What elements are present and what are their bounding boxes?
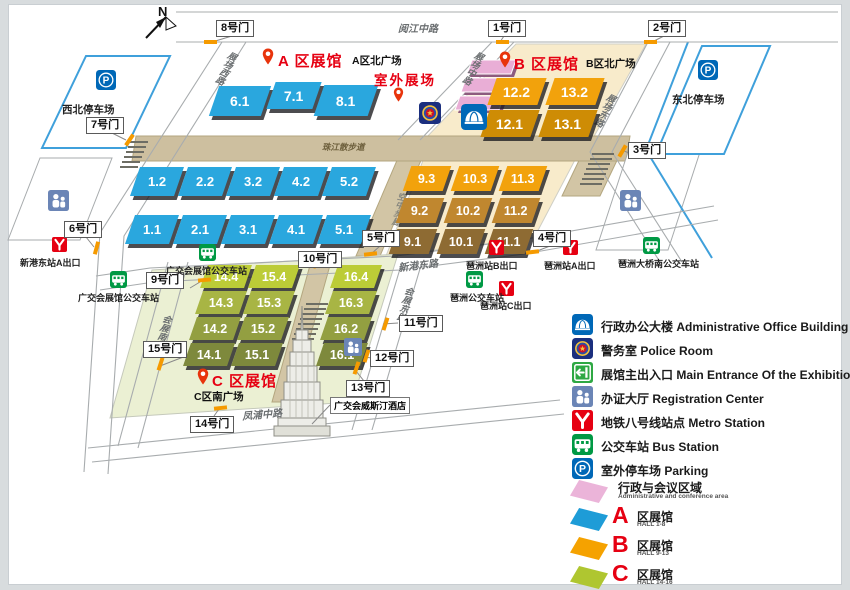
police-icon	[572, 338, 593, 359]
gate-11: 11号门	[399, 315, 443, 332]
gate-8: 8号门	[216, 20, 254, 37]
bus-exhibition-2-label: 广交会展馆公交车站	[78, 291, 159, 304]
legend-admin-area-en: Administrative and conference area	[618, 493, 728, 500]
admin-building-icon	[572, 314, 593, 335]
gate-7: 7号门	[86, 117, 124, 134]
gate-4: 4号门	[533, 230, 571, 247]
bus-icon	[572, 434, 593, 455]
metro-pazhou-b-label: 琶洲站B出口	[466, 259, 518, 272]
zone-c-title: C 区展馆	[212, 370, 277, 391]
hall-15.4: 15.4	[248, 265, 300, 288]
legend-item-police: 警务室 Police Room	[601, 342, 713, 359]
hall-6.1: 6.1	[209, 86, 271, 116]
canton-fair-complex-map: P	[0, 0, 850, 590]
hall-7.1: 7.1	[266, 82, 321, 109]
gate-marker	[204, 40, 217, 44]
metro-icon	[52, 237, 67, 252]
gate-marker	[496, 40, 509, 44]
metro-icon	[572, 410, 593, 431]
legend-letter-a: A	[612, 504, 629, 527]
gate-5: 5号门	[362, 230, 400, 247]
metro-icon	[489, 240, 504, 255]
zone-b-title: B 区展馆	[514, 53, 579, 74]
hall-15.2: 15.2	[237, 317, 289, 340]
bus-exhibition-1-label: 广交会展馆公交车站	[166, 264, 247, 277]
gate-12: 12号门	[370, 350, 414, 367]
hall-8.1: 8.1	[314, 85, 379, 116]
hall-15.3: 15.3	[243, 291, 295, 314]
gate-14: 14号门	[190, 416, 234, 433]
admin-building-icon	[461, 104, 487, 130]
parking-icon	[698, 60, 718, 80]
gate-1: 1号门	[488, 20, 526, 37]
hall-12.2: 12.2	[487, 78, 546, 105]
riverside-walkway-band	[132, 136, 630, 161]
gate-15: 15号门	[143, 341, 187, 358]
bus-pazhou-bridge-label: 琶洲大桥南公交车站	[618, 257, 699, 270]
outdoor-exhibition-label: 室外展场	[374, 69, 436, 89]
hall-15.1: 15.1	[231, 343, 283, 366]
hall-14.3: 14.3	[195, 291, 247, 314]
road-label-yuejiangzhonglu: 阅江中路	[398, 20, 438, 35]
zone-b-pin-icon	[499, 51, 511, 68]
parking-nw-label: 西北停车场	[62, 102, 115, 117]
legend-zone-b-en: HALL 9-13	[637, 550, 669, 557]
bus-icon	[643, 237, 660, 254]
legend-zone-c-en: HALL 14-16	[637, 579, 673, 586]
legend-item-registration: 办证大厅 Registration Center	[601, 390, 764, 407]
zone-a-title: A 区展馆	[278, 50, 342, 71]
hall-13.1: 13.1	[538, 110, 597, 137]
parking-icon	[96, 70, 116, 90]
legend-item-entrance: 展馆主出入口 Main Entrance Of the Exhibition H…	[601, 366, 850, 383]
compass-north-label: N	[158, 4, 167, 19]
westin-hotel-label: 广交会威斯汀酒店	[330, 397, 410, 414]
registration-icon	[620, 190, 641, 211]
hall-16.2: 16.2	[320, 317, 372, 340]
legend-letter-c: C	[612, 562, 629, 585]
registration-icon	[572, 386, 593, 407]
metro-pazhou-a-label: 琶洲站A出口	[544, 259, 596, 272]
hall-12.1: 12.1	[480, 110, 539, 137]
outdoor-exhibition-pin-icon	[393, 87, 404, 102]
road-label-zhujiangsanbudao: 珠江散步道	[322, 141, 365, 153]
main-entrance-icon	[572, 362, 593, 383]
hall-16.4: 16.4	[330, 265, 382, 288]
hall-14.1: 14.1	[183, 343, 235, 366]
metro-xingang-a-label: 新港东站A出口	[20, 256, 81, 269]
legend-zone-a-en: HALL 1-8	[637, 521, 665, 528]
zone-c-pin-icon	[197, 368, 209, 385]
hall-16.3: 16.3	[325, 291, 377, 314]
hall-13.2: 13.2	[545, 78, 604, 105]
gate-3: 3号门	[628, 142, 666, 159]
bus-pazhou-label: 琶洲公交车站	[450, 291, 504, 304]
legend-letter-b: B	[612, 533, 629, 556]
gate-10: 10号门	[298, 251, 342, 268]
zone-a-plaza-label: A区北广场	[352, 53, 402, 68]
bus-icon	[110, 271, 127, 288]
zone-b-plaza-label: B区北广场	[586, 56, 636, 71]
compass-arrow	[146, 17, 176, 38]
zone-a-pin-icon	[262, 48, 274, 65]
legend-item-bus: 公交车站 Bus Station	[601, 438, 719, 455]
legend-item-admin: 行政办公大楼 Administrative Office Building	[601, 318, 848, 335]
bus-icon	[466, 271, 483, 288]
parking-ne-label: 东北停车场	[672, 92, 725, 107]
gate-marker	[644, 40, 657, 44]
registration-icon	[48, 190, 69, 211]
legend-item-metro: 地铁八号线站点 Metro Station	[601, 414, 765, 431]
gate-13: 13号门	[346, 380, 390, 397]
hall-14.2: 14.2	[189, 317, 241, 340]
legend-item-parking: 室外停车场 Parking	[601, 462, 708, 479]
zone-c-plaza-label: C区南广场	[194, 389, 244, 404]
police-icon	[419, 102, 441, 124]
registration-icon	[344, 338, 362, 356]
bus-icon	[199, 244, 216, 261]
parking-icon	[572, 458, 593, 479]
gate-2: 2号门	[648, 20, 686, 37]
gate-6: 6号门	[64, 221, 102, 238]
